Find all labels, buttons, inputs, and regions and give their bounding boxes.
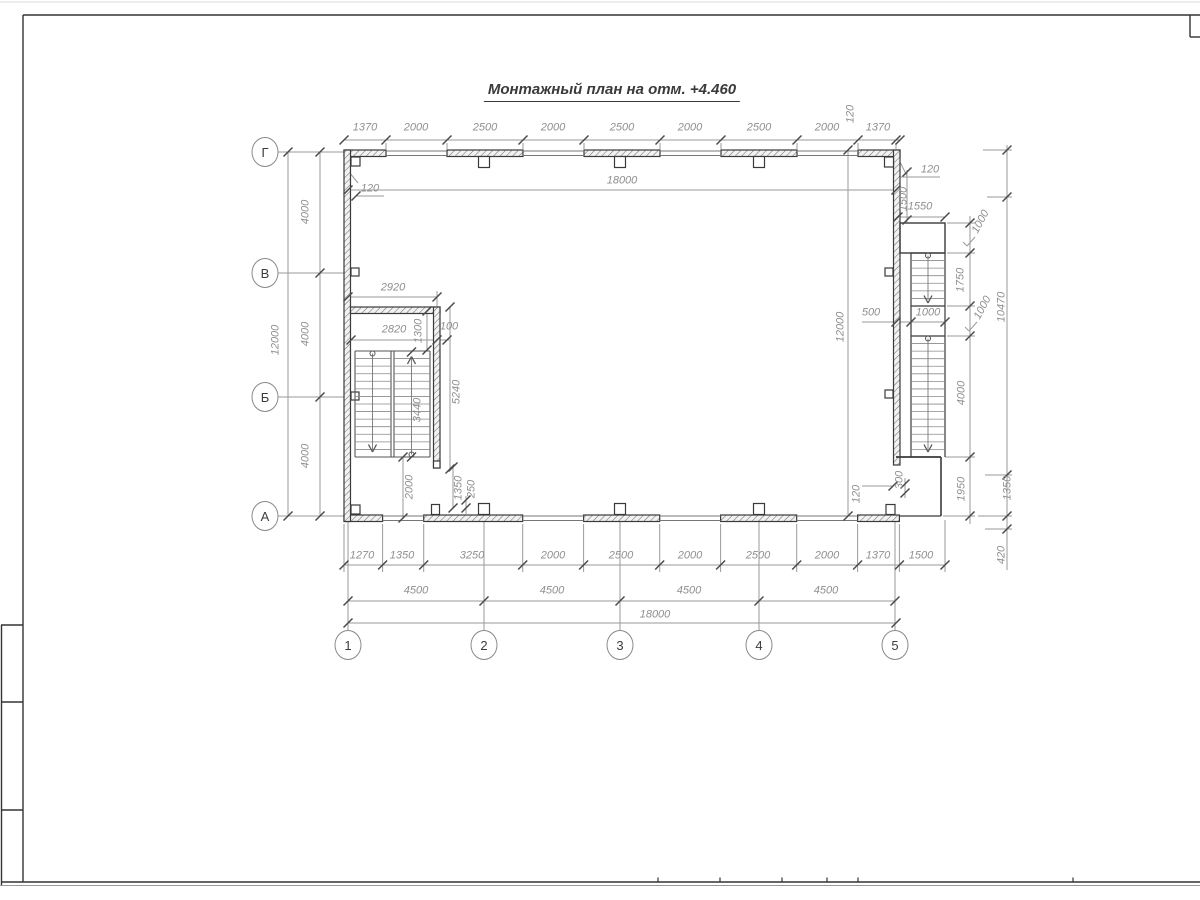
dimension-ticks bbox=[284, 136, 1012, 628]
drawing-sheet: Монтажный план на отм. +4.460 1370200025… bbox=[0, 0, 1200, 900]
stairs bbox=[355, 223, 945, 516]
drawing-title: Монтажный план на отм. +4.460 bbox=[484, 81, 740, 102]
sheet-frame bbox=[0, 2, 1200, 886]
floor-plan-svg bbox=[0, 0, 1200, 900]
